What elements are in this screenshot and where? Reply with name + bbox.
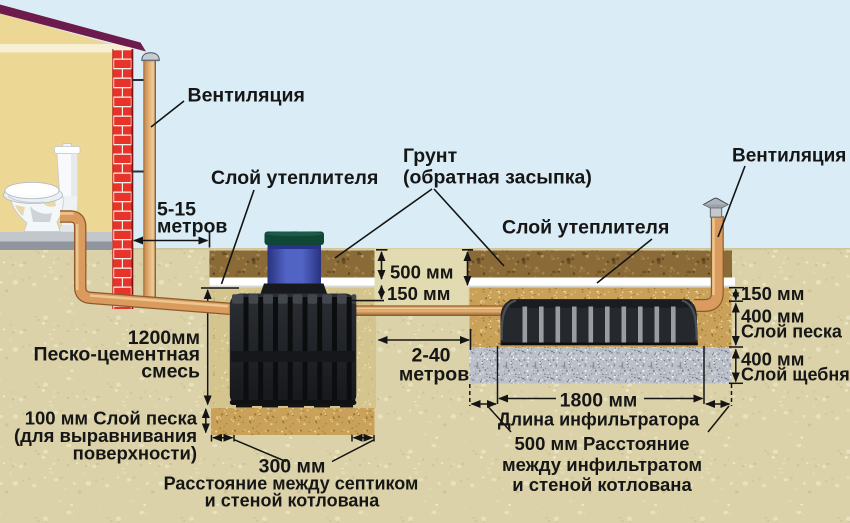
svg-text:Длина инфильтратора: Длина инфильтратора: [498, 410, 700, 430]
svg-text:Слой утеплителя: Слой утеплителя: [502, 217, 669, 239]
svg-text:500 мм Расстояние: 500 мм Расстояние: [515, 433, 690, 454]
svg-text:Вентиляция: Вентиляция: [732, 146, 846, 167]
svg-text:метров: метров: [157, 216, 227, 238]
svg-text:150 мм: 150 мм: [741, 283, 804, 304]
svg-text:и стеной котлована: и стеной котлована: [512, 474, 692, 495]
svg-text:Слой утеплителя: Слой утеплителя: [211, 167, 378, 189]
svg-text:Слой щебня: Слой щебня: [741, 365, 850, 385]
svg-text:между инфильтратом: между инфильтратом: [502, 454, 702, 475]
svg-text:смесь: смесь: [141, 361, 200, 383]
svg-text:(обратная засыпка): (обратная засыпка): [403, 167, 592, 189]
svg-text:поверхности): поверхности): [73, 443, 197, 464]
svg-text:150 мм: 150 мм: [387, 283, 450, 304]
svg-text:Слой песка: Слой песка: [741, 322, 843, 342]
svg-text:500 мм: 500 мм: [390, 262, 453, 283]
svg-text:метров: метров: [399, 364, 469, 386]
svg-text:Грунт: Грунт: [403, 145, 457, 167]
svg-text:1800 мм: 1800 мм: [560, 390, 638, 412]
svg-text:Вентиляция: Вентиляция: [188, 85, 305, 107]
svg-text:и стеной котлована: и стеной котлована: [205, 491, 381, 511]
